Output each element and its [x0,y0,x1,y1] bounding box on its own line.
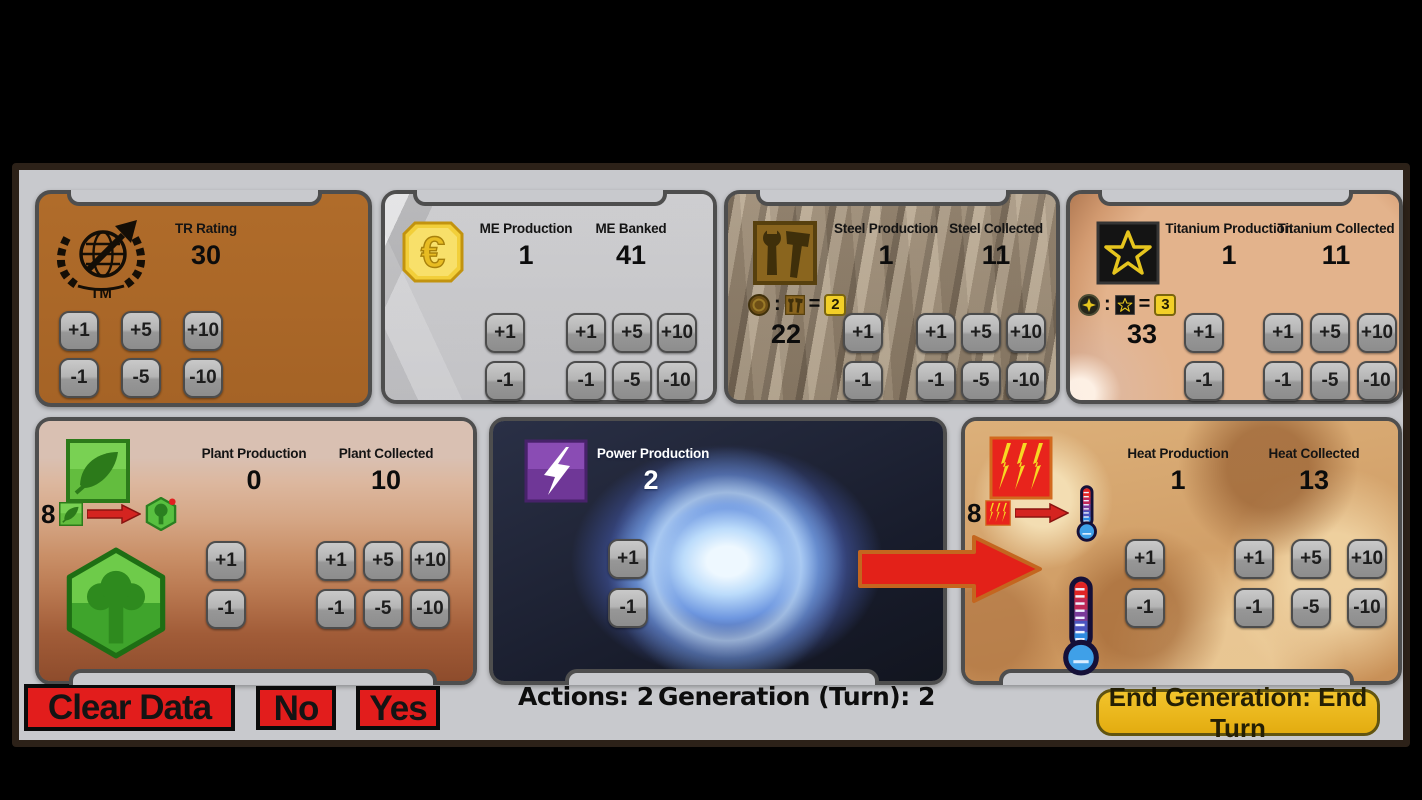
actions-label: Actions: [518,682,629,711]
no-button[interactable]: No [256,686,336,730]
plant-coll-plus1-button[interactable]: +1 [316,541,356,581]
power-production-label: Power Production [597,446,709,461]
heat-coll-minus5-button[interactable]: -5 [1291,588,1331,628]
heat-coll-minus10-button[interactable]: -10 [1347,588,1387,628]
tr-plus1-button[interactable]: +1 [59,311,99,351]
heat-to-temperature-conversion: 8 [967,485,1100,541]
app-frame: TM TR Rating 30 +1 +5 +10 -1 -5 -10 € ME… [12,163,1410,747]
ratio-colon: : [774,293,781,316]
sun-coin-icon [1078,294,1100,316]
panel-tr-rating: TM TR Rating 30 +1 +5 +10 -1 -5 -10 [35,190,372,407]
heat-coll-plus5-button[interactable]: +5 [1291,539,1331,579]
me-prod-minus1-button[interactable]: -1 [485,361,525,401]
plant-production-label: Plant Production [202,446,307,461]
end-generation-button[interactable]: End Generation: End Turn [1096,689,1380,736]
titanium-trade-ratio: : = 3 [1078,293,1176,316]
tr-plus10-button[interactable]: +10 [183,311,223,351]
steel-collected-label: Steel Collected [949,221,1043,236]
me-production-label: ME Production [480,221,573,236]
panel-notch [756,190,1010,206]
ti-coll-plus5-button[interactable]: +5 [1310,313,1350,353]
me-prod-plus1-button[interactable]: +1 [485,313,525,353]
panel-notch [565,669,879,685]
steel-prod-minus1-button[interactable]: -1 [843,361,883,401]
tr-minus1-button[interactable]: -1 [59,358,99,398]
heat-prod-plus1-button[interactable]: +1 [1125,539,1165,579]
generation-label: Generation (Turn): [658,682,910,711]
power-prod-plus1-button[interactable]: +1 [608,539,648,579]
steel-trade-ratio: : = 2 [748,293,846,316]
tr-plus5-button[interactable]: +5 [121,311,161,351]
me-bank-plus1-button[interactable]: +1 [566,313,606,353]
ti-prod-minus1-button[interactable]: -1 [1184,361,1224,401]
steel-coll-minus5-button[interactable]: -5 [961,361,1001,401]
ratio-equals: = [809,293,821,316]
thermometer-mini-icon [1073,485,1100,542]
ti-coll-minus10-button[interactable]: -10 [1357,361,1397,401]
ti-coll-minus1-button[interactable]: -1 [1263,361,1303,401]
me-banked-label: ME Banked [596,221,667,236]
panel-plants: Plant Production 0 Plant Collected 10 8 … [35,417,477,685]
plant-coll-minus10-button[interactable]: -10 [410,589,450,629]
yes-button[interactable]: Yes [356,686,440,730]
titanium-production-label: Titanium Production [1165,221,1292,236]
ti-coll-minus5-button[interactable]: -5 [1310,361,1350,401]
terraforming-rating-logo-icon: TM [53,216,149,300]
heat-prod-minus1-button[interactable]: -1 [1125,588,1165,628]
plant-coll-plus10-button[interactable]: +10 [410,541,450,581]
euro-symbol: € [421,228,445,277]
plant-coll-minus5-button[interactable]: -5 [363,589,403,629]
panel-megacredits: € ME Production 1 ME Banked 41 +1 -1 +1 … [381,190,717,404]
convert-arrow-icon [87,504,141,524]
plant-coll-minus1-button[interactable]: -1 [316,589,356,629]
steel-coll-plus1-button[interactable]: +1 [916,313,956,353]
plant-convert-count: 8 [41,499,55,530]
panel-notch [1098,190,1353,206]
plant-production-value: 0 [246,465,261,496]
plant-collected-value: 10 [371,465,401,496]
clear-data-button[interactable]: Clear Data [24,684,235,731]
steel-mini-icon [785,295,805,315]
greenery-tile-icon [64,547,168,659]
titanium-collected-label: Titanium Collected [1278,221,1395,236]
tr-rating-value: 30 [191,240,221,271]
steel-coll-minus1-button[interactable]: -1 [916,361,956,401]
generation-value: 2 [918,682,935,711]
titanium-trade-value: 33 [1127,319,1157,350]
me-bank-plus5-button[interactable]: +5 [612,313,652,353]
ratio-colon: : [1104,293,1111,316]
power-prod-minus1-button[interactable]: -1 [608,588,648,628]
panel-notch [67,190,322,206]
titanium-mini-icon [1115,295,1135,315]
plant-coll-plus5-button[interactable]: +5 [363,541,403,581]
actions-counter: Actions: 2 [518,682,654,711]
me-bank-plus10-button[interactable]: +10 [657,313,697,353]
heat-coll-plus1-button[interactable]: +1 [1234,539,1274,579]
panel-notch [413,190,667,206]
plant-mini-icon [59,502,83,526]
power-to-heat-arrow-icon [858,534,1044,604]
heat-collected-label: Heat Collected [1269,446,1360,461]
tr-minus10-button[interactable]: -10 [183,358,223,398]
steel-tools-icon [753,221,817,285]
steel-trade-rate-badge: 2 [824,294,846,316]
ratio-equals: = [1139,293,1151,316]
ti-coll-plus10-button[interactable]: +10 [1357,313,1397,353]
convert-arrow-icon [1015,503,1069,523]
steel-coll-minus10-button[interactable]: -10 [1006,361,1046,401]
heat-production-label: Heat Production [1127,446,1228,461]
panel-titanium: Titanium Production 1 Titanium Collected… [1066,190,1403,404]
me-banked-value: 41 [616,240,646,271]
me-bank-minus5-button[interactable]: -5 [612,361,652,401]
steel-coll-plus10-button[interactable]: +10 [1006,313,1046,353]
heat-collected-value: 13 [1299,465,1329,496]
power-lightning-icon [524,439,588,503]
heat-coll-plus10-button[interactable]: +10 [1347,539,1387,579]
me-bank-minus10-button[interactable]: -10 [657,361,697,401]
titanium-production-value: 1 [1221,240,1236,271]
actions-value: 2 [637,682,654,711]
steel-production-label: Steel Production [834,221,938,236]
plant-to-greenery-conversion: 8 [41,497,177,531]
plant-collected-label: Plant Collected [339,446,434,461]
tr-minus5-button[interactable]: -5 [121,358,161,398]
me-bank-minus1-button[interactable]: -1 [566,361,606,401]
ti-prod-plus1-button[interactable]: +1 [1184,313,1224,353]
panel-steel: Steel Production 1 Steel Collected 11 : … [724,190,1060,404]
thermometer-icon [1057,576,1104,676]
titanium-trade-rate-badge: 3 [1154,294,1176,316]
plant-prod-plus1-button[interactable]: +1 [206,541,246,581]
steel-production-value: 1 [878,240,893,271]
megacredit-euro-coin-icon: € [401,220,465,284]
tm-logo-text: TM [90,285,112,300]
panel-notch [999,669,1354,685]
me-production-value: 1 [518,240,533,271]
steel-coll-plus5-button[interactable]: +5 [961,313,1001,353]
tr-rating-label: TR Rating [175,221,237,236]
steel-prod-plus1-button[interactable]: +1 [843,313,883,353]
greenery-tile-mini-icon [145,497,177,531]
heat-production-value: 1 [1170,465,1185,496]
steel-collected-value: 11 [982,240,1011,271]
heat-mini-icon [985,500,1011,526]
heat-coll-minus1-button[interactable]: -1 [1234,588,1274,628]
heat-convert-count: 8 [967,498,981,529]
ti-coll-plus1-button[interactable]: +1 [1263,313,1303,353]
steel-trade-value: 22 [771,319,801,350]
titanium-star-icon [1096,221,1160,285]
generation-counter: Generation (Turn): 2 [658,682,935,711]
plant-leaf-icon [66,439,130,503]
megacredit-coin-icon [748,294,770,316]
titanium-collected-value: 11 [1322,240,1351,271]
plant-prod-minus1-button[interactable]: -1 [206,589,246,629]
panel-notch [69,669,437,685]
power-production-value: 2 [643,465,658,496]
